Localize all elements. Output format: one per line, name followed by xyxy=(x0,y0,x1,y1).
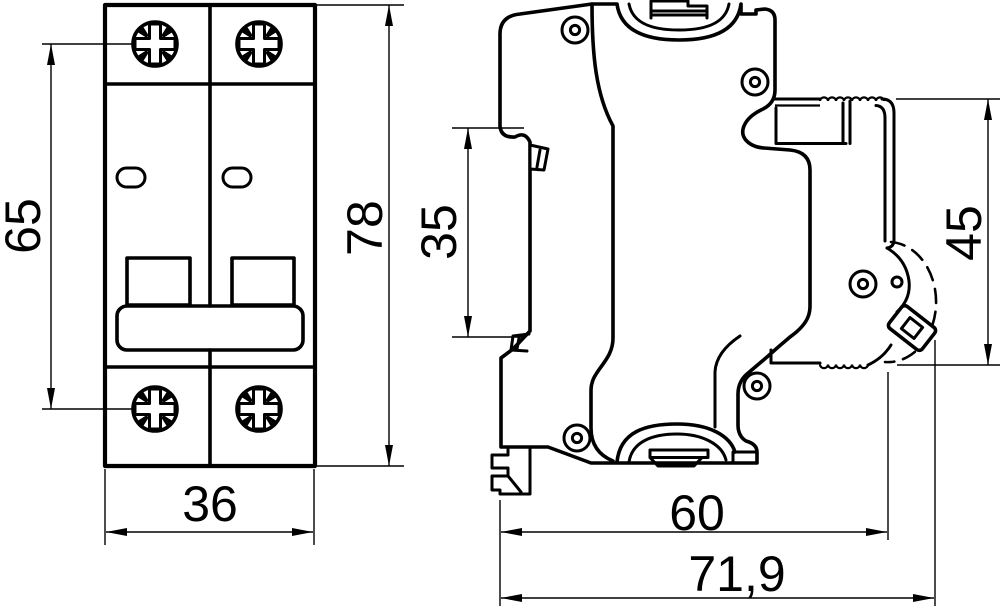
terminal-clamp-box xyxy=(776,101,850,144)
dimension-overall-width: 36 xyxy=(105,469,314,545)
terminal-screw-icon xyxy=(237,387,281,431)
indicator-window xyxy=(117,168,145,187)
serrated-edge-top xyxy=(820,97,884,101)
indicator-window xyxy=(223,168,251,187)
front-face-step-line xyxy=(591,4,613,461)
toggle-handle xyxy=(232,258,294,305)
rivet-icon xyxy=(564,425,590,451)
dimension-mounting-centers: 65 xyxy=(0,44,134,409)
terminal-lobe-shelf xyxy=(771,350,820,363)
dim-label-71-9: 71,9 xyxy=(688,546,785,602)
rivet-icon xyxy=(850,271,876,297)
dimension-overall-depth: 71,9 xyxy=(501,340,935,606)
din-clip-tooth-upper xyxy=(530,145,548,170)
dim-label-35: 35 xyxy=(411,204,467,260)
busbar-pin xyxy=(876,99,894,248)
dim-label-65: 65 xyxy=(0,198,51,254)
dimension-din-rail: 35 xyxy=(411,128,524,337)
terminal-screw-icon xyxy=(237,22,281,66)
din-latch-slider xyxy=(492,447,530,494)
toggle-handle xyxy=(127,258,190,305)
dimension-overall-height: 78 xyxy=(317,5,404,466)
dim-label-60: 60 xyxy=(669,485,725,541)
side-view xyxy=(492,0,937,494)
pivot-hole xyxy=(892,277,902,287)
clamp-tab xyxy=(887,304,937,352)
rivet-icon xyxy=(562,17,588,43)
terminal-screw-icon xyxy=(133,387,177,431)
dim-label-45: 45 xyxy=(936,205,992,261)
bottom-arch-foot-block xyxy=(733,452,757,462)
dim-label-78: 78 xyxy=(337,200,393,256)
drawing-page: 65 78 36 xyxy=(0,0,1000,608)
handle-tie-bar xyxy=(117,306,303,350)
terminal-screw-icon xyxy=(133,22,177,66)
serrated-edge-bottom xyxy=(820,365,868,369)
dim-label-36: 36 xyxy=(182,476,238,532)
rivet-icon xyxy=(742,69,768,95)
rivet-icon xyxy=(744,373,770,399)
technical-drawing: 65 78 36 xyxy=(0,0,1000,608)
front-view xyxy=(105,5,315,466)
